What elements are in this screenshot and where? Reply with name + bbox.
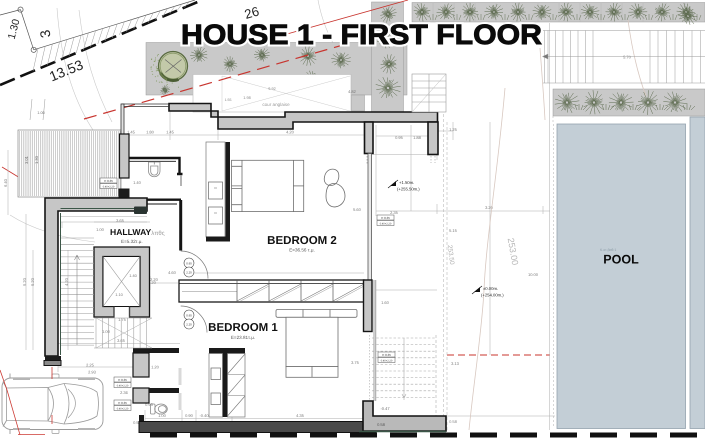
- svg-text:Π 0.35: Π 0.35: [118, 378, 127, 382]
- svg-text:+1.50m.: +1.50m.: [399, 180, 414, 185]
- svg-text:1.55: 1.55: [225, 98, 232, 102]
- svg-text:BEDROOM 2: BEDROOM 2: [267, 235, 337, 247]
- svg-text:2.20: 2.20: [186, 323, 192, 327]
- svg-text:2.93: 2.93: [88, 370, 97, 375]
- svg-text:E=23.81τ.μ.: E=23.81τ.μ.: [231, 335, 255, 340]
- svg-text:Π 0.35: Π 0.35: [382, 353, 391, 357]
- svg-text:cour anglaise: cour anglaise: [262, 102, 290, 107]
- svg-text:4.20: 4.20: [64, 277, 69, 286]
- svg-text:±0.00m.: ±0.00m.: [483, 286, 498, 291]
- svg-text:4.60: 4.60: [168, 270, 177, 275]
- svg-text:0.90: 0.90: [186, 262, 192, 266]
- svg-text:5.20: 5.20: [22, 277, 27, 286]
- svg-text:3.13: 3.13: [451, 361, 460, 366]
- svg-text:10.00: 10.00: [528, 272, 539, 277]
- svg-text:2.35: 2.35: [390, 210, 399, 215]
- svg-text:4.35: 4.35: [296, 413, 305, 418]
- svg-text:-0.47: -0.47: [380, 406, 390, 411]
- svg-text:0.58: 0.58: [377, 422, 386, 427]
- svg-text:1.30: 1.30: [34, 155, 39, 164]
- svg-text:POOL: POOL: [603, 253, 639, 267]
- svg-text:E=5.32τ.μ.: E=5.32τ.μ.: [121, 239, 143, 244]
- svg-text:0.40×2.20: 0.40×2.20: [117, 408, 129, 411]
- svg-text:(+254.00m.): (+254.00m.): [481, 293, 504, 298]
- svg-text:Κ.στ.βαθ.1: Κ.στ.βαθ.1: [600, 248, 616, 252]
- svg-text:3.75: 3.75: [351, 360, 360, 365]
- svg-text:(+255.50m.): (+255.50m.): [397, 187, 420, 192]
- svg-text:E=36.56 τ.μ.: E=36.56 τ.μ.: [289, 248, 315, 253]
- svg-text:2.25: 2.25: [86, 363, 95, 368]
- svg-text:5.60: 5.60: [353, 207, 362, 212]
- svg-text:1.00: 1.00: [102, 329, 111, 334]
- svg-text:9.92: 9.92: [268, 87, 275, 91]
- svg-text:1.88: 1.88: [413, 135, 422, 140]
- svg-text:3.65: 3.65: [116, 218, 125, 223]
- svg-text:2.20: 2.20: [186, 271, 192, 275]
- svg-text:3.01: 3.01: [24, 155, 29, 164]
- svg-text:-0.40: -0.40: [199, 413, 209, 418]
- svg-text:HOUSE 1 - FIRST FLOOR: HOUSE 1 - FIRST FLOOR: [181, 19, 542, 50]
- svg-text:1.98: 1.98: [243, 96, 250, 100]
- svg-text:5.15: 5.15: [449, 228, 458, 233]
- svg-text:0.40×2.20: 0.40×2.20: [117, 385, 129, 388]
- svg-text:2.36: 2.36: [120, 390, 129, 395]
- svg-text:1.60: 1.60: [381, 300, 390, 305]
- svg-text:0.40×2.20: 0.40×2.20: [103, 186, 115, 189]
- svg-text:0.90: 0.90: [185, 413, 194, 418]
- svg-text:1.40: 1.40: [133, 180, 142, 185]
- svg-text:BEDROOM 1: BEDROOM 1: [208, 322, 278, 334]
- svg-text:4.82: 4.82: [348, 89, 357, 94]
- svg-text:4.20: 4.20: [286, 130, 295, 135]
- svg-text:1.20: 1.20: [151, 365, 160, 370]
- svg-text:6.40: 6.40: [3, 178, 8, 187]
- svg-text:1.25: 1.25: [449, 127, 458, 132]
- svg-text:Π 0.35: Π 0.35: [104, 179, 113, 183]
- svg-text:0.40×2.20: 0.40×2.20: [381, 360, 393, 363]
- svg-text:0.90: 0.90: [186, 314, 192, 318]
- svg-text:Π 0.35: Π 0.35: [381, 216, 390, 220]
- svg-text:0.58: 0.58: [449, 419, 458, 424]
- svg-text:1.00: 1.00: [96, 227, 105, 232]
- svg-text:1.45: 1.45: [166, 130, 175, 135]
- svg-text:Π 0.35: Π 0.35: [118, 401, 127, 405]
- svg-text:2.20: 2.20: [150, 277, 159, 282]
- svg-text:0.40×2.20: 0.40×2.20: [380, 223, 392, 226]
- svg-text:1.00: 1.00: [37, 111, 44, 115]
- svg-text:1.40: 1.40: [129, 274, 136, 278]
- svg-text:0.95: 0.95: [395, 135, 404, 140]
- svg-text:1.10: 1.10: [115, 293, 122, 297]
- svg-text:1.80: 1.80: [146, 130, 155, 135]
- svg-text:5.70: 5.70: [623, 55, 632, 60]
- svg-text:5.20: 5.20: [30, 277, 35, 286]
